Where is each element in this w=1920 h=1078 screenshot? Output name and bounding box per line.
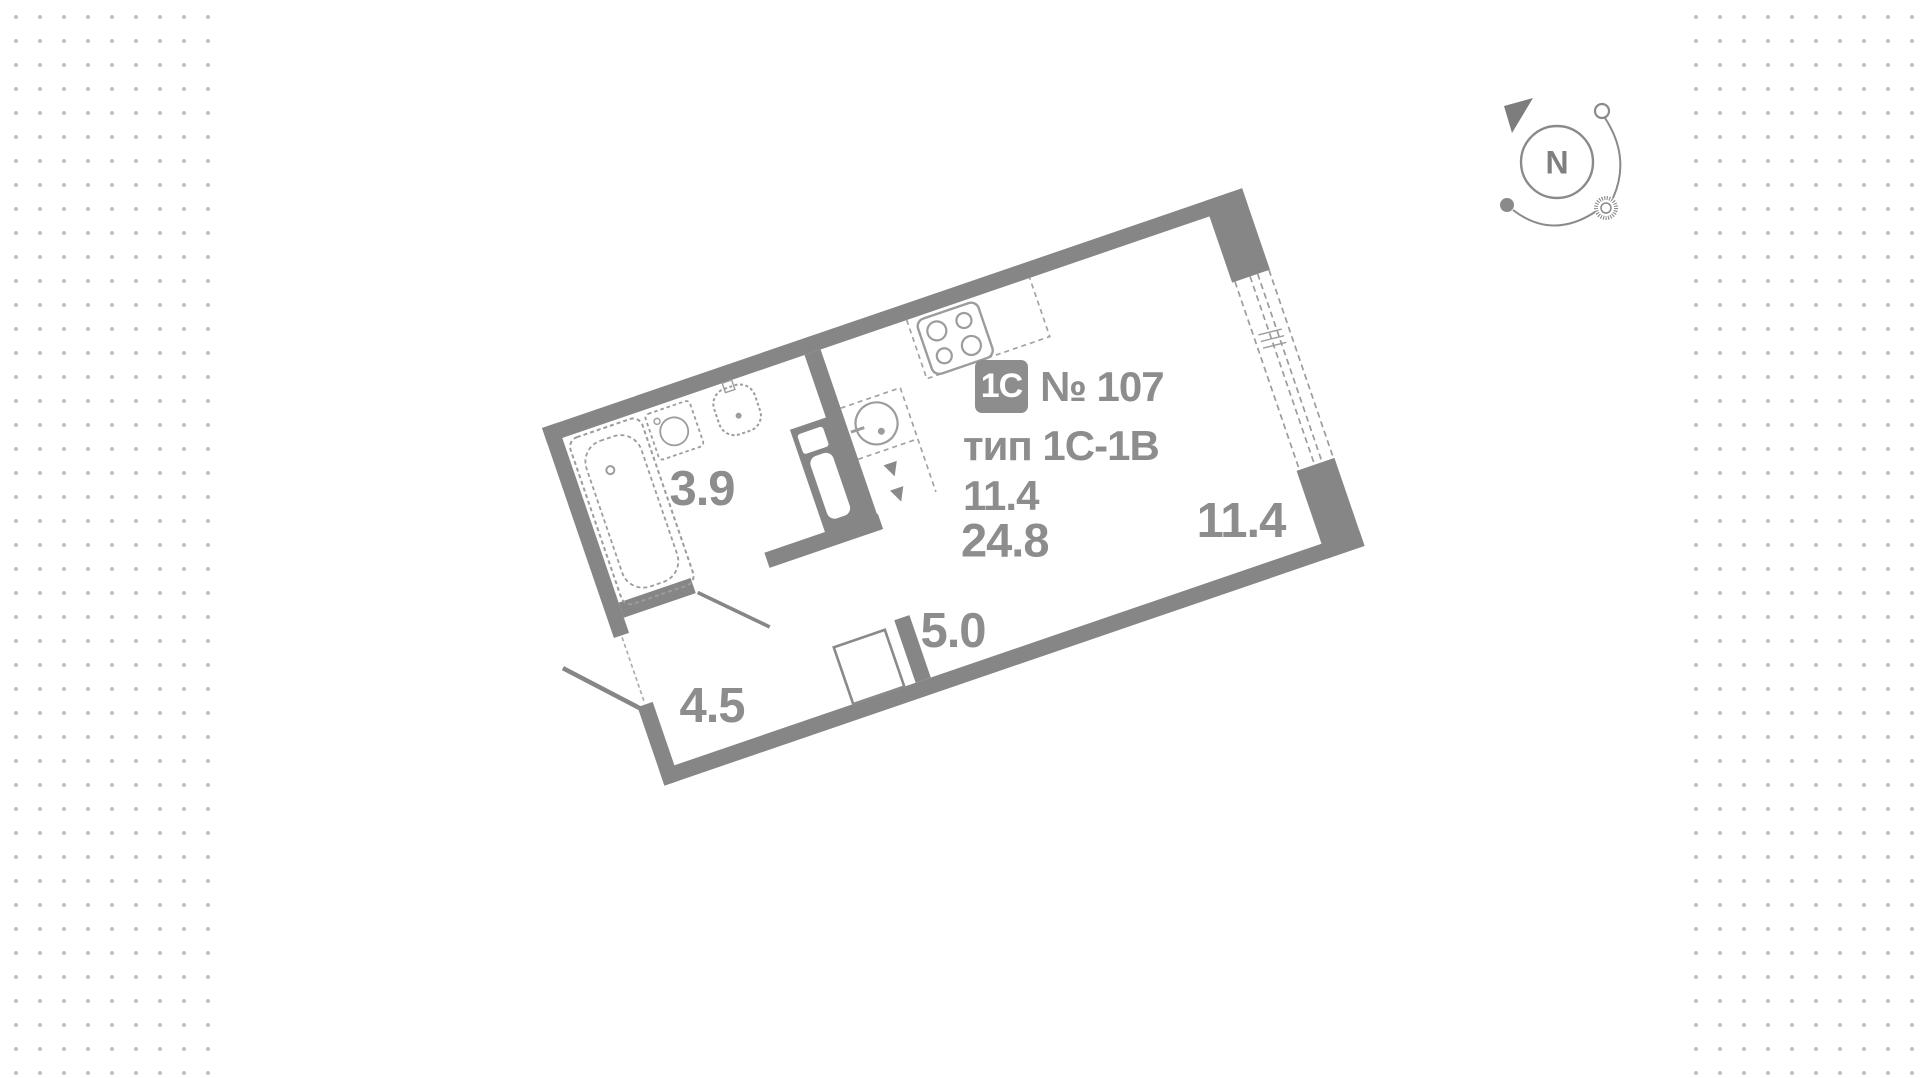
compass-north-label: N xyxy=(1545,145,1568,182)
window-pier-bottom xyxy=(1297,458,1365,559)
unit-type-badge-text: 1C xyxy=(981,367,1022,406)
floorplan-page: { "unit_info": { "badge": "1C", "number"… xyxy=(0,0,1920,1078)
room-area-label-kitchen: 5.0 xyxy=(920,603,985,659)
unit-number: № 107 xyxy=(1040,363,1164,411)
compass-dot-outline xyxy=(1595,104,1609,118)
floor-plan-canvas xyxy=(0,0,1920,1078)
compass-dot-filled xyxy=(1500,198,1514,212)
walls xyxy=(542,188,1365,785)
unit-total-area: 24.8 xyxy=(961,513,1048,568)
compass-arc-bottom xyxy=(1513,210,1595,226)
washing-machine xyxy=(644,400,704,461)
unit-type-badge: 1C xyxy=(975,360,1028,413)
compass-arc-right xyxy=(1605,118,1620,198)
bathroom-door xyxy=(698,574,770,645)
compass-flag-icon xyxy=(1504,98,1533,133)
wall-bottom xyxy=(659,531,1364,786)
compass-sun-center xyxy=(1601,203,1611,213)
bathtub-drain-icon xyxy=(605,465,615,475)
room-area-label-living-room: 11.4 xyxy=(1197,493,1286,549)
kitchen-sink xyxy=(844,397,903,452)
unit-type-name: тип 1С-1В xyxy=(963,422,1159,470)
window xyxy=(1235,270,1334,470)
room-area-label-bathroom: 3.9 xyxy=(669,461,734,517)
kitchen-counter-marks xyxy=(882,461,910,504)
entrance-door xyxy=(560,637,646,727)
window-pier-top xyxy=(1204,188,1270,282)
room-area-label-hallway: 4.5 xyxy=(679,678,744,734)
window-vent-icon xyxy=(1258,327,1286,350)
